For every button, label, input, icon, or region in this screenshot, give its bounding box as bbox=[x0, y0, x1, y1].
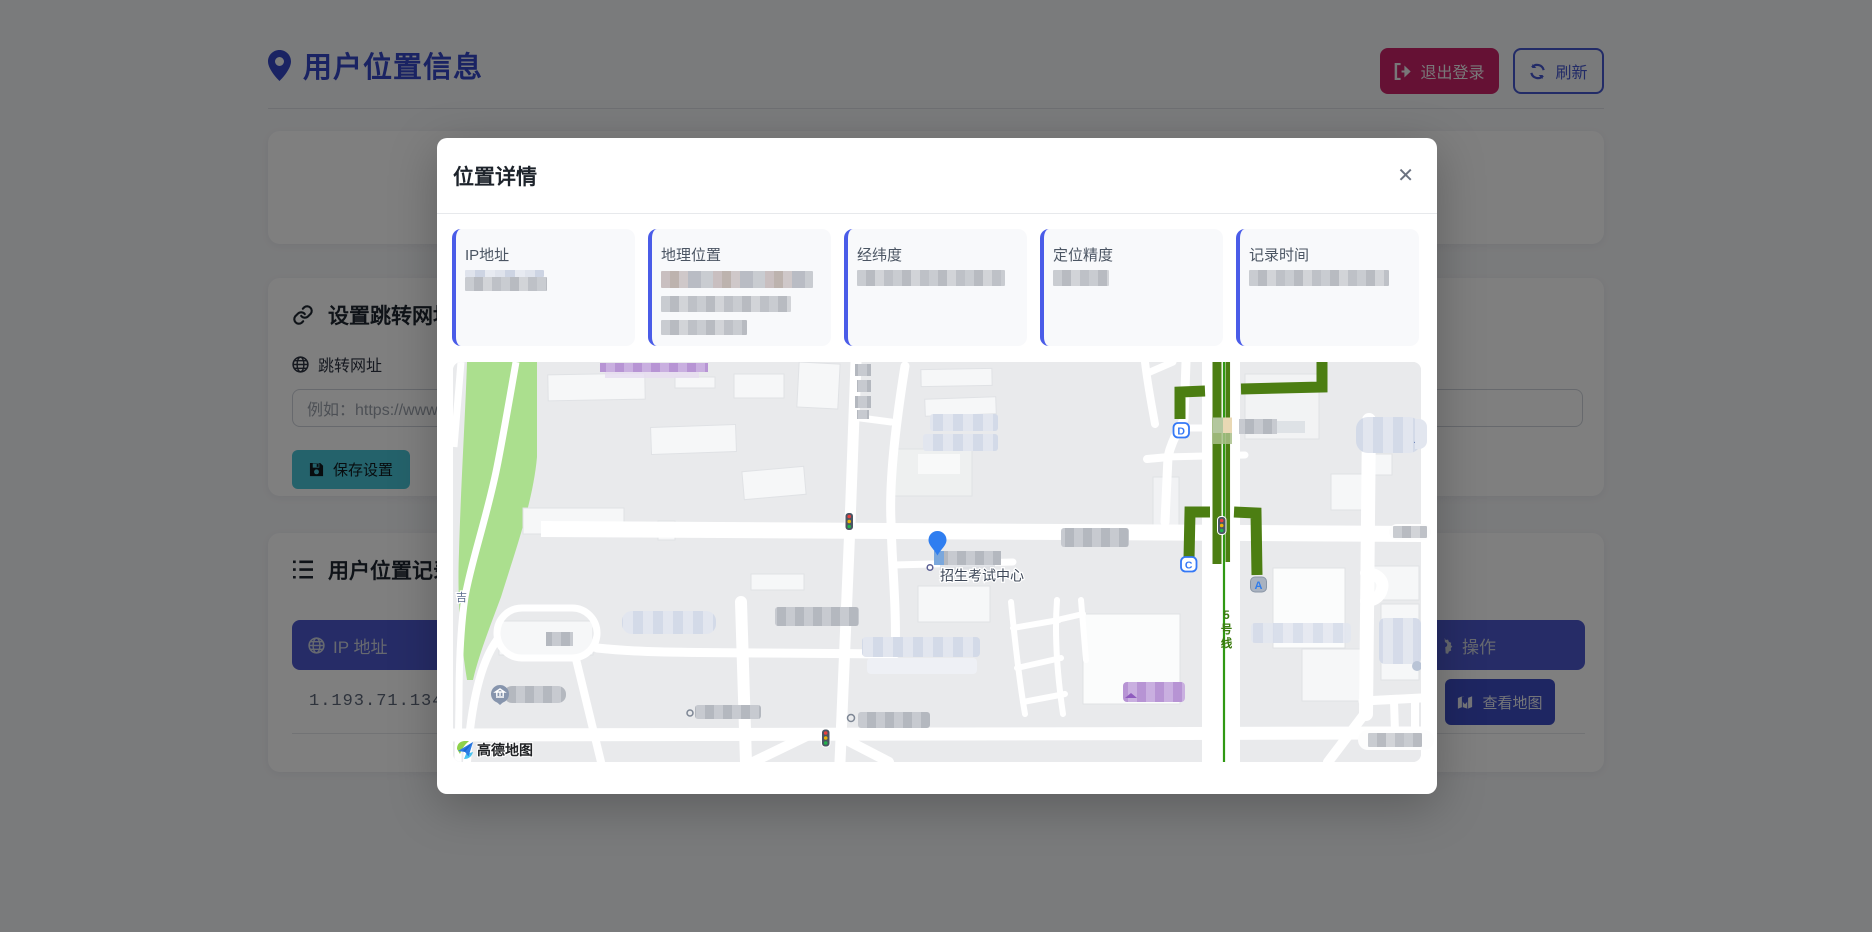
svg-text:A: A bbox=[1255, 580, 1263, 592]
svg-text:高德地图: 高德地图 bbox=[477, 742, 533, 758]
svg-text:C: C bbox=[1185, 560, 1193, 572]
svg-text:5: 5 bbox=[1223, 610, 1230, 622]
svg-text:线: 线 bbox=[1221, 636, 1233, 650]
svg-text:D: D bbox=[1177, 426, 1185, 438]
svg-text:吉: 吉 bbox=[456, 591, 467, 604]
svg-text:号: 号 bbox=[1221, 623, 1233, 636]
svg-text:招生考试中心: 招生考试中心 bbox=[940, 568, 1024, 584]
